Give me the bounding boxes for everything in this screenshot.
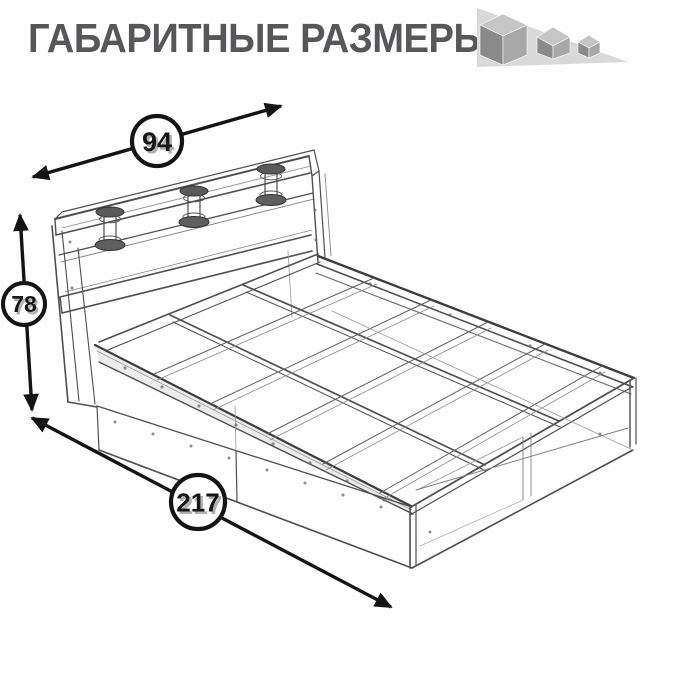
screw-hole-dots [69,209,602,534]
storage-box [97,311,636,568]
bed-sketch [52,150,636,568]
dimension-badges: 94 94 78 78 217 217 [3,116,225,529]
page: ГАБАРИТНЫЕ РАЗМЕРЫ [0,0,700,690]
platform-slats [154,278,605,499]
width-value: 94 [142,127,172,157]
length-value: 217 [176,488,219,518]
height-value: 78 [11,291,37,317]
drawer-seam [236,451,237,502]
bed-platform [95,254,634,515]
bed-dimension-drawing: 94 94 78 78 217 217 [0,0,700,690]
